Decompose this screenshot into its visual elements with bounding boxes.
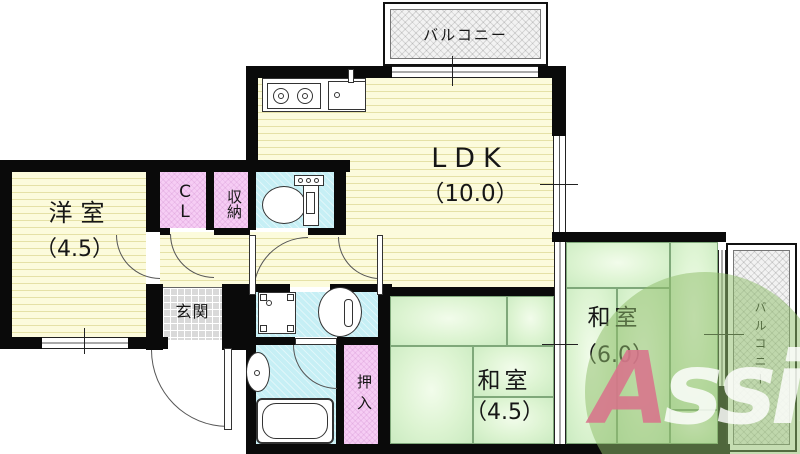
tatami-mat (390, 346, 473, 444)
wall (160, 228, 170, 235)
wash-basin-inner (344, 299, 353, 327)
toilet-button (298, 178, 303, 183)
wall (146, 284, 163, 350)
bathtub-inner (262, 403, 328, 439)
wall (246, 66, 392, 78)
wall (12, 337, 42, 349)
wall (336, 345, 344, 444)
stove-burner-center (278, 93, 284, 99)
door-leaf (295, 338, 337, 345)
wall (378, 292, 390, 450)
window (42, 337, 128, 349)
wall (214, 228, 250, 235)
wall (308, 228, 346, 235)
balcony-top-label: バルコニー (383, 27, 548, 44)
washer-corner (287, 325, 294, 332)
toilet-button (306, 178, 311, 183)
washer-corner (287, 294, 294, 301)
door-swing-arc (151, 350, 228, 427)
watermark-letter-a: A (592, 330, 663, 447)
bath-sink-drain (254, 370, 260, 376)
toilet-button (314, 178, 319, 183)
washitsu45-label: 和室 (452, 369, 557, 394)
washitsu45-size-label: （4.5） (447, 401, 562, 425)
window-tick (84, 328, 85, 354)
wall (552, 232, 726, 242)
wall (206, 172, 214, 230)
wall (383, 287, 560, 296)
wall (337, 337, 380, 345)
wash-basin-icon (318, 287, 362, 337)
oshiire-label: 押入 (350, 355, 372, 435)
stove-burner-center (302, 93, 308, 99)
sink-drain (334, 92, 340, 98)
wall (246, 78, 258, 172)
shuno-label: 収納 (220, 180, 242, 228)
washer-corner (260, 325, 267, 332)
door-leaf (377, 235, 383, 295)
toilet-tank-inner (306, 192, 315, 214)
window (392, 66, 538, 78)
wall (538, 66, 566, 78)
wall (0, 172, 12, 349)
wall (334, 163, 346, 232)
genkan-label: 玄関 (163, 303, 222, 321)
watermark-text: Assist (592, 330, 800, 447)
ldk-size-label: （10.0） (390, 182, 550, 207)
faucet-icon (348, 69, 354, 83)
window-tick (452, 56, 453, 86)
wall (250, 337, 295, 345)
tatami-mat (390, 296, 507, 346)
door-leaf (249, 235, 256, 295)
door-leaf (224, 348, 232, 430)
wall (552, 78, 566, 136)
wall (0, 160, 350, 172)
toilet-bowl-icon (262, 186, 306, 224)
watermark-letters: ssist (663, 330, 800, 447)
ldk-label: LDK (395, 144, 545, 174)
wall (248, 172, 256, 230)
washer-drain (266, 300, 272, 306)
yoshitsu-label: 洋室 (18, 200, 143, 226)
floor-plan: バルコニー LDK （10.0） 洋室 （4.5） 和室 （6.0） 和室 （4… (0, 0, 800, 454)
tatami-mat (507, 296, 554, 346)
cl-label: CL (172, 177, 194, 227)
yoshitsu-size-label: （4.5） (12, 238, 137, 262)
tatami-mat (566, 242, 670, 288)
wall (146, 172, 160, 232)
